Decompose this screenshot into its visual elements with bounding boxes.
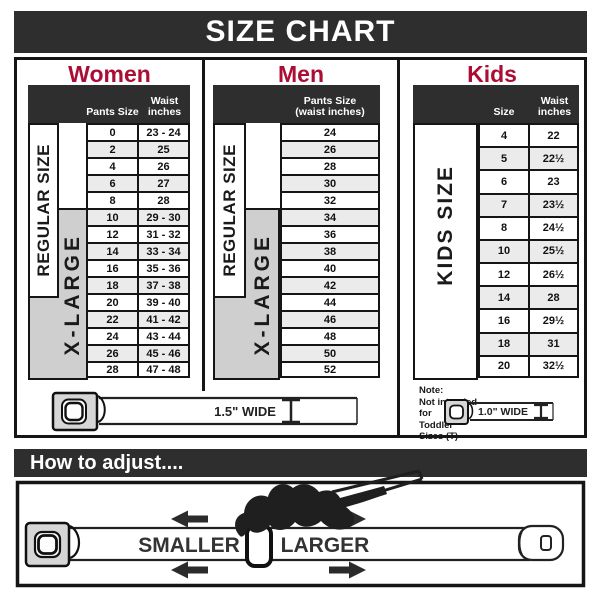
table-cell: 40 (280, 259, 380, 276)
xlarge-size-label: X-LARGE (251, 233, 275, 356)
table-row: 2032½ (478, 355, 579, 378)
table-cell: 45 - 46 (137, 344, 190, 361)
table-cell: 47 - 48 (137, 361, 190, 378)
men-table-body: 242628303234363840424446485052 (280, 123, 380, 378)
toddler-note: Note: Not intended for Toddler Sizes (T) (419, 385, 479, 443)
table-row: 1635 - 36 (86, 259, 190, 276)
table-cell: 26 (280, 140, 380, 157)
table-cell: 4 (478, 123, 530, 146)
table-row: 24 (280, 123, 380, 140)
table-cell: 24 (280, 123, 380, 140)
table-row: 28 (280, 157, 380, 174)
table-cell: 24½ (528, 216, 579, 239)
table-cell: 23½ (528, 193, 579, 216)
table-cell: 12 (86, 225, 139, 242)
table-cell: 16 (86, 259, 139, 276)
table-row: 627 (86, 174, 190, 191)
table-cell: 42 (280, 276, 380, 293)
table-row: 1025½ (478, 239, 579, 262)
table-row: 225 (86, 140, 190, 157)
kids-belt-width-label: 1.0" WIDE (478, 406, 528, 418)
table-cell: 32½ (528, 355, 579, 378)
women-men-divider (202, 60, 205, 391)
table-cell: 50 (280, 344, 380, 361)
table-cell: 31 - 32 (137, 225, 190, 242)
table-row: 2039 - 40 (86, 293, 190, 310)
table-cell: 5 (478, 146, 530, 169)
table-row: 48 (280, 327, 380, 344)
kids-size-label: KIDS SIZE (434, 165, 458, 286)
table-row: 46 (280, 310, 380, 327)
kids-size-table: Size Waist inches Note: Not intended for… (413, 85, 581, 382)
table-cell: 6 (86, 174, 139, 191)
table-cell: 22 (86, 310, 139, 327)
men-kids-divider (397, 60, 400, 435)
table-row: 422 (478, 123, 579, 146)
table-cell: 24 (86, 327, 139, 344)
table-row: 26 (280, 140, 380, 157)
table-cell: 26½ (528, 262, 579, 285)
table-cell: 26 (137, 157, 190, 174)
table-cell: 14 (86, 242, 139, 259)
table-row: 1837 - 38 (86, 276, 190, 293)
table-cell: 12 (478, 262, 530, 285)
table-row: 1231 - 32 (86, 225, 190, 242)
table-row: 32 (280, 191, 380, 208)
table-cell: 33 - 34 (137, 242, 190, 259)
table-row: 2241 - 42 (86, 310, 190, 327)
page-title: SIZE CHART (206, 15, 396, 49)
adult-belt-icon: 1.5" WIDE (53, 393, 357, 430)
table-cell: 35 - 36 (137, 259, 190, 276)
table-cell: 28 (137, 191, 190, 208)
table-row: 52 (280, 361, 380, 378)
table-row: 1831 (478, 332, 579, 355)
column-header: Waist inches (139, 96, 190, 119)
table-cell: 28 (528, 285, 579, 308)
men-section-title: Men (205, 61, 397, 87)
table-row: 1029 - 30 (86, 208, 190, 225)
table-row: 1226½ (478, 262, 579, 285)
kids-table-header: Size Waist inches (413, 85, 579, 123)
adjust-illustration: SMALLER LARGER (14, 440, 587, 600)
table-cell: 18 (86, 276, 139, 293)
table-row: 1433 - 34 (86, 242, 190, 259)
men-size-table: Pants Size (waist inches) REGULAR SIZE X… (213, 85, 383, 382)
table-row: 38 (280, 242, 380, 259)
table-cell: 20 (478, 355, 530, 378)
table-cell: 7 (478, 193, 530, 216)
table-cell: 23 - 24 (137, 123, 190, 140)
table-cell: 2 (86, 140, 139, 157)
table-row: 426 (86, 157, 190, 174)
table-cell: 28 (280, 157, 380, 174)
table-cell: 25 (137, 140, 190, 157)
table-cell: 26 (86, 344, 139, 361)
table-cell: 29½ (528, 308, 579, 331)
table-cell: 18 (478, 332, 530, 355)
table-cell: 0 (86, 123, 139, 140)
table-row: 30 (280, 174, 380, 191)
table-row: 40 (280, 259, 380, 276)
table-row: 2645 - 46 (86, 344, 190, 361)
table-row: 1629½ (478, 308, 579, 331)
table-cell: 43 - 44 (137, 327, 190, 344)
table-cell: 46 (280, 310, 380, 327)
table-row: 42 (280, 276, 380, 293)
table-row: 2443 - 44 (86, 327, 190, 344)
kids-section-title: Kids (400, 61, 584, 87)
table-row: 1428 (478, 285, 579, 308)
table-cell: 41 - 42 (137, 310, 190, 327)
table-cell: 31 (528, 332, 579, 355)
table-cell: 22½ (528, 146, 579, 169)
table-row: 522½ (478, 146, 579, 169)
table-cell: 22 (528, 123, 579, 146)
title-bar: SIZE CHART (14, 11, 587, 53)
table-cell: 37 - 38 (137, 276, 190, 293)
table-cell: 27 (137, 174, 190, 191)
table-row: 50 (280, 344, 380, 361)
size-chart-box: Women Men Kids Pants Size Waist inches R… (14, 57, 587, 438)
regular-size-label: REGULAR SIZE (34, 144, 54, 277)
table-row: 623 (478, 169, 579, 192)
table-cell: 20 (86, 293, 139, 310)
table-cell: 6 (478, 169, 530, 192)
table-row: 824½ (478, 216, 579, 239)
table-cell: 25½ (528, 239, 579, 262)
table-row: 36 (280, 225, 380, 242)
table-cell: 32 (280, 191, 380, 208)
men-table-header: Pants Size (waist inches) (213, 85, 380, 123)
table-row: 34 (280, 208, 380, 225)
table-row: 2847 - 48 (86, 361, 190, 378)
table-cell: 36 (280, 225, 380, 242)
table-cell: 28 (86, 361, 139, 378)
table-cell: 44 (280, 293, 380, 310)
table-cell: 38 (280, 242, 380, 259)
belt-tip-icon (519, 526, 563, 560)
table-row: 44 (280, 293, 380, 310)
regular-size-label: REGULAR SIZE (220, 144, 240, 277)
adult-belt-width-label: 1.5" WIDE (214, 404, 276, 419)
women-section-title: Women (17, 61, 202, 87)
table-cell: 10 (86, 208, 139, 225)
table-cell: 29 - 30 (137, 208, 190, 225)
xlarge-size-label: X-LARGE (61, 233, 85, 356)
table-row: 723½ (478, 193, 579, 216)
table-cell: 48 (280, 327, 380, 344)
larger-label: LARGER (281, 534, 370, 557)
table-cell: 10 (478, 239, 530, 262)
column-header: Size (478, 107, 530, 119)
size-chart-page: SIZE CHART Women Men Kids Pants Size Wai… (0, 0, 600, 600)
smaller-label: SMALLER (138, 534, 240, 557)
table-row: 828 (86, 191, 190, 208)
column-header: Pants Size (waist inches) (280, 96, 380, 119)
table-cell: 8 (478, 216, 530, 239)
kids-table-body: 422522½623723½824½1025½1226½14281629½183… (478, 123, 579, 378)
column-header: Waist inches (530, 96, 579, 119)
women-table-body: 023 - 242254266278281029 - 301231 - 3214… (86, 123, 190, 378)
women-table-header: Pants Size Waist inches (28, 85, 190, 123)
women-size-table: Pants Size Waist inches REGULAR SIZE X-L… (28, 85, 194, 382)
table-cell: 14 (478, 285, 530, 308)
table-cell: 4 (86, 157, 139, 174)
table-row: 023 - 24 (86, 123, 190, 140)
table-cell: 30 (280, 174, 380, 191)
table-cell: 23 (528, 169, 579, 192)
table-cell: 39 - 40 (137, 293, 190, 310)
table-cell: 8 (86, 191, 139, 208)
table-cell: 16 (478, 308, 530, 331)
column-header: Pants Size (86, 107, 139, 119)
table-cell: 34 (280, 208, 380, 225)
table-cell: 52 (280, 361, 380, 378)
